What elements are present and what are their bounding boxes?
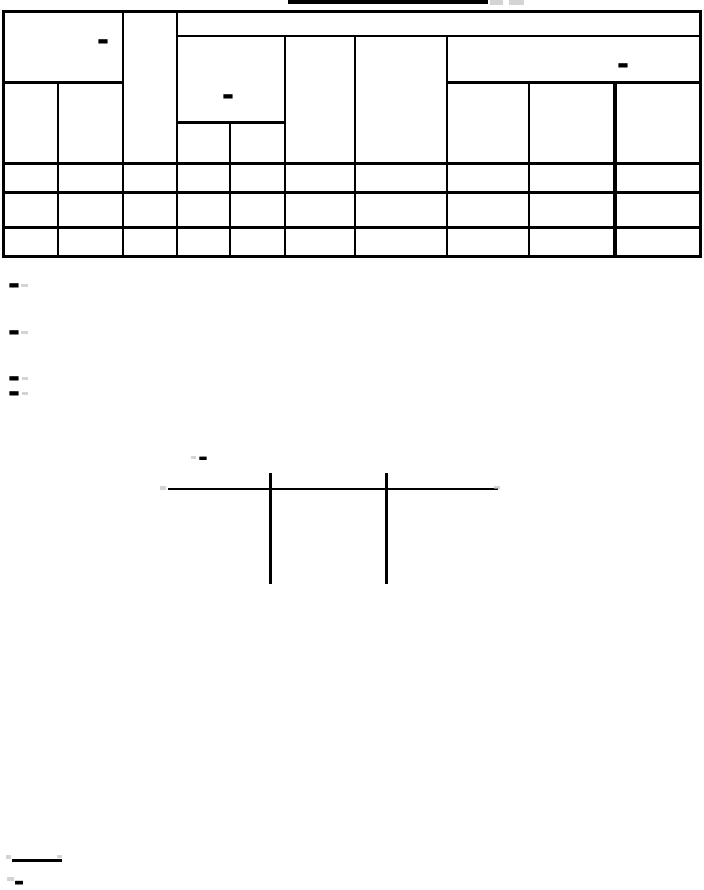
table-col-divider	[176, 10, 178, 258]
table-header-bottom-rule	[2, 162, 702, 165]
table-border-bottom	[2, 255, 702, 258]
table-header-dash-middle: -	[217, 85, 239, 107]
figure-axis-line	[168, 488, 498, 490]
table-col-divider	[528, 81, 530, 258]
table-col-divider	[122, 10, 124, 258]
table-col-divider	[284, 35, 286, 258]
table-row-rule	[2, 226, 702, 229]
faint-text-remnant	[6, 855, 11, 859]
table-header-band-rule	[177, 35, 702, 37]
table-left-headercell-rule	[2, 81, 123, 84]
table-border-right	[699, 10, 702, 258]
figure-tick-2	[385, 473, 388, 584]
faint-text-remnant	[22, 377, 28, 380]
faint-title-remnant	[490, 0, 503, 5]
faint-text-remnant	[22, 392, 28, 395]
table-row-rule	[2, 191, 702, 194]
table-col-divider	[229, 121, 231, 258]
scanned-document-page: - - - - - - - - -	[0, 0, 704, 890]
table-col-divider	[446, 35, 448, 258]
table-border-top	[2, 10, 702, 13]
table-mid-subcell-rule	[177, 121, 285, 124]
faint-text-remnant	[21, 284, 28, 287]
table-border-left	[2, 10, 5, 258]
faint-axis-end	[494, 486, 500, 489]
faint-text-remnant	[21, 331, 28, 334]
faint-text-remnant	[191, 456, 196, 459]
footnote-dash: -	[8, 871, 30, 890]
table-col-divider-thick	[613, 81, 617, 258]
faint-axis-end	[160, 486, 166, 490]
figure-tick-1	[269, 473, 272, 584]
table-right-band-rule	[446, 81, 702, 84]
title-underline	[288, 0, 488, 4]
table-header-dash-right: -	[612, 54, 634, 76]
footnote-rule	[12, 859, 62, 862]
table-col-divider	[354, 35, 356, 258]
table-header-dash-left: -	[92, 30, 114, 52]
faint-text-remnant	[57, 855, 62, 858]
table-col-divider	[57, 81, 59, 258]
faint-title-remnant	[509, 0, 524, 5]
